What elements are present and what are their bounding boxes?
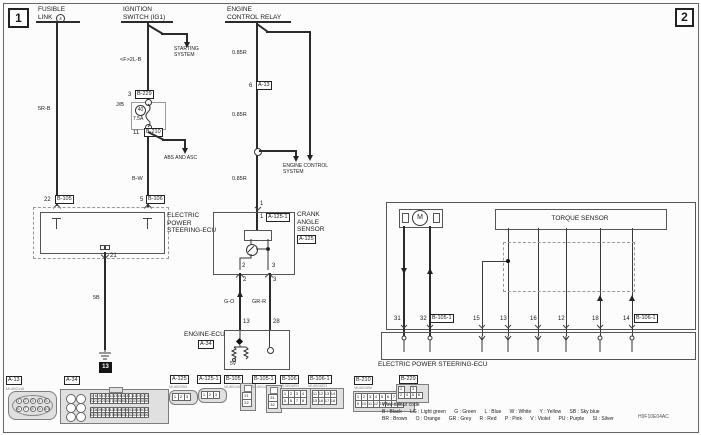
wiring-diagram-page: 1 2 FUSIBLE LINK 4 5R-B 22 B-105 IGNITIO… — [0, 0, 701, 435]
diagram-linework — [0, 0, 701, 435]
